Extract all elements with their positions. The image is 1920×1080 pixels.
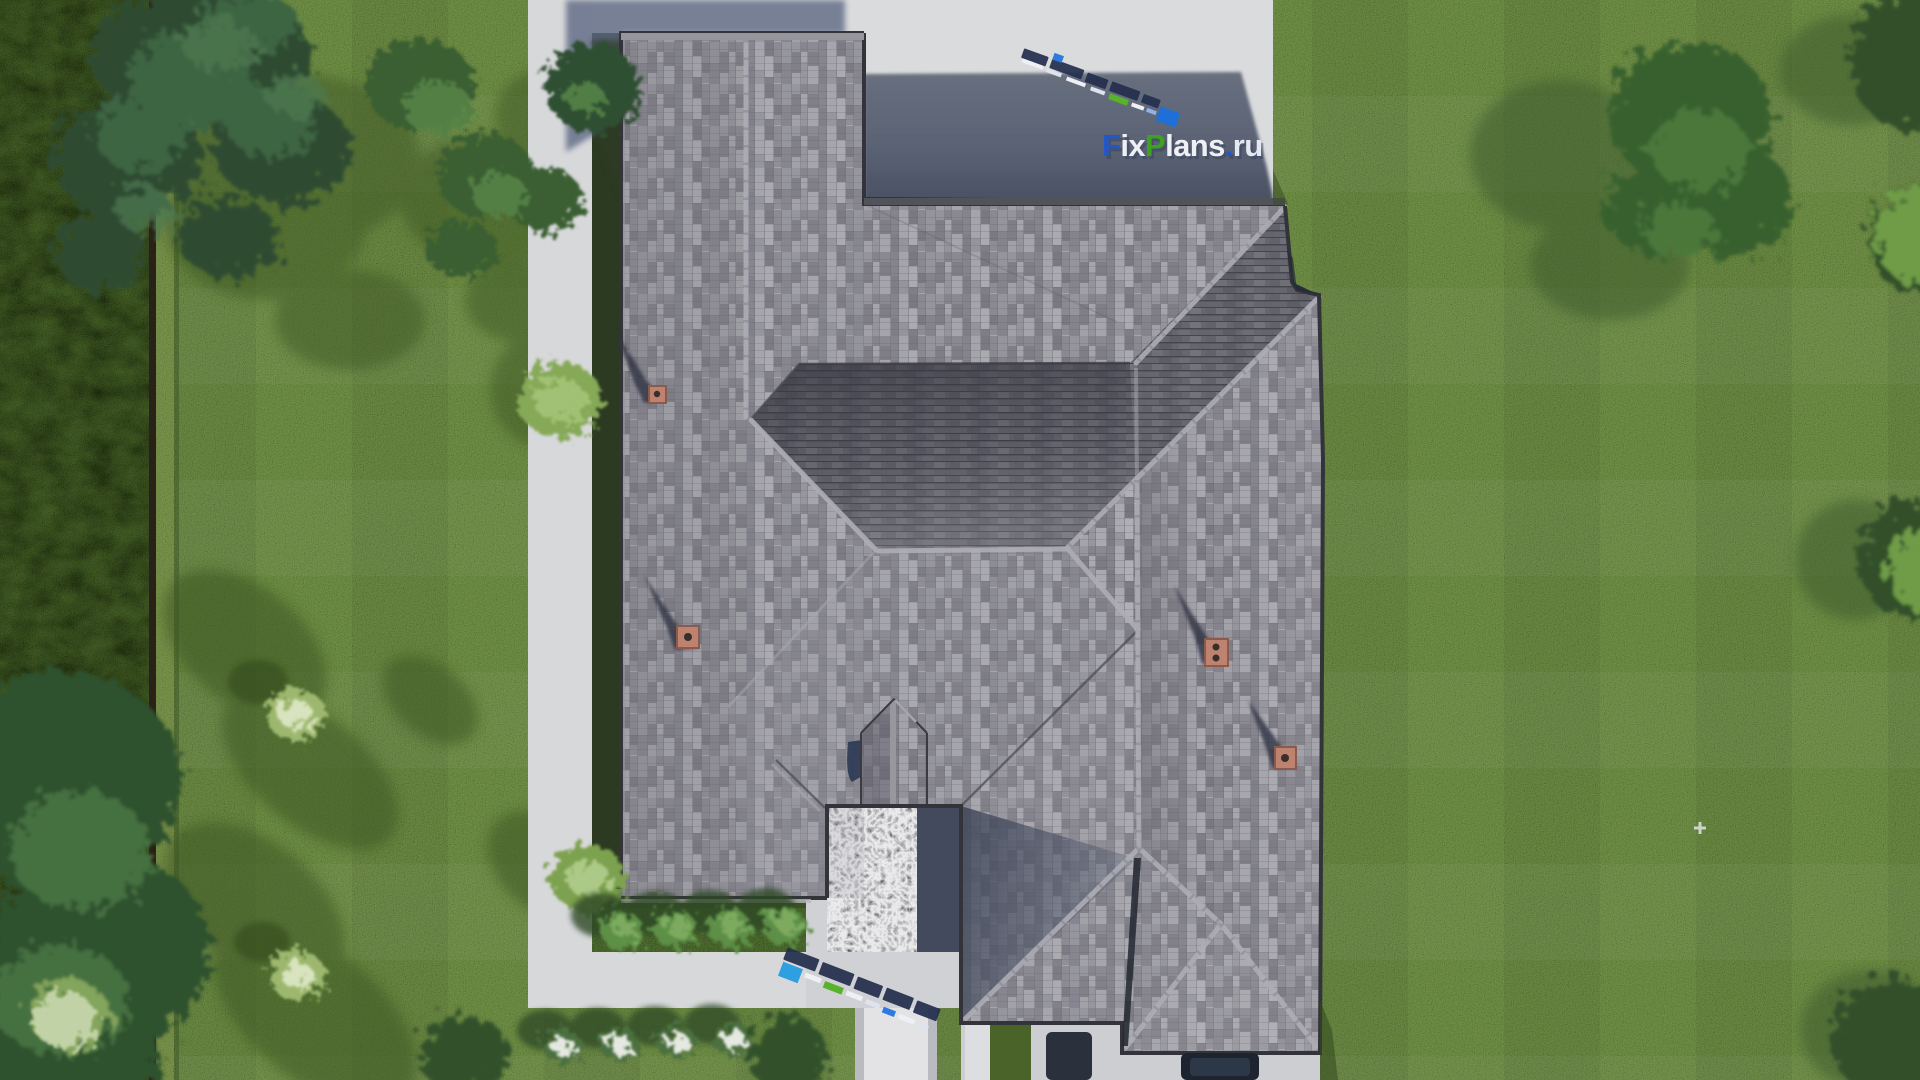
svg-text:FixPlans.ru: FixPlans.ru: [1102, 128, 1263, 163]
